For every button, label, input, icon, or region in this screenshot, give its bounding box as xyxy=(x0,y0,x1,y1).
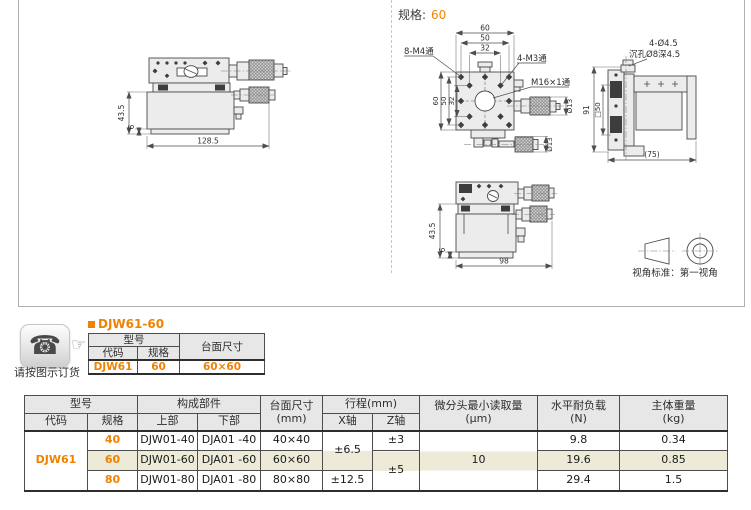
cell-size: 40×40 xyxy=(261,431,323,451)
header-size: 台面尺寸(mm) xyxy=(261,396,323,431)
cell-spec: 40 xyxy=(88,431,138,451)
order-table: 型号 台面尺寸 代码 规格 DJW61 60 60×60 xyxy=(88,333,265,375)
label-counterbore: 沉孔Ø8深4.5 xyxy=(629,49,680,60)
label-m3-holes: 4-M3通 xyxy=(517,53,547,64)
order-cell-spec: 60 xyxy=(138,360,180,374)
cell-travel-z: ±3 xyxy=(373,431,420,451)
header-upper: 上部 xyxy=(138,414,198,431)
right-side-view-drawing: 91 □50 (75) 4-Ø4.5 沉孔Ø8深4.5 xyxy=(582,38,696,163)
header-z-axis: Z轴 xyxy=(373,414,420,431)
label-mount-holes: 4-Ø4.5 xyxy=(649,38,678,49)
dim-knob-dia-right: Ø13 xyxy=(566,99,574,113)
cell-travel-z: ±5 xyxy=(373,451,420,491)
header-code: 代码 xyxy=(25,414,88,431)
cell-upper: DJW01-80 xyxy=(138,471,198,491)
cell-load: 9.8 xyxy=(538,431,620,451)
technical-drawings: 43.5 6 128.5 xyxy=(19,0,746,307)
phone-icon: ☎ xyxy=(29,333,61,359)
dim-front-left-50: 50 xyxy=(440,97,448,106)
order-cell-size: 60×60 xyxy=(180,360,265,374)
dim-lower-base: 6 xyxy=(438,247,447,252)
dim-front-left-32: 32 xyxy=(448,97,456,106)
dim-right-depth: (75) xyxy=(644,150,659,159)
cell-resolution: 10 xyxy=(420,431,538,491)
order-instruction: 请按图示订货 xyxy=(14,364,80,380)
header-model: 型号 xyxy=(25,396,138,414)
cell-weight: 0.34 xyxy=(620,431,728,451)
cell-load: 29.4 xyxy=(538,471,620,491)
header-x-axis: X轴 xyxy=(323,414,373,431)
dim-front-top-32: 32 xyxy=(480,44,490,53)
orange-bullet-icon xyxy=(88,321,95,328)
dim-side-base: 6 xyxy=(127,124,136,129)
front-view-drawing: Ø13 Ø13 60 50 xyxy=(404,24,574,153)
dim-right-height: 91 xyxy=(582,105,591,115)
cell-spec: 80 xyxy=(88,471,138,491)
cell-size: 60×60 xyxy=(261,451,323,471)
cell-lower: DJA01 -80 xyxy=(198,471,261,491)
cell-weight: 1.5 xyxy=(620,471,728,491)
dim-front-left-60: 60 xyxy=(432,97,440,106)
cell-spec: 60 xyxy=(88,451,138,471)
header-travel: 行程(mm) xyxy=(323,396,420,414)
cell-travel-x: ±12.5 xyxy=(323,471,373,491)
product-title-text: DJW61-60 xyxy=(98,317,164,331)
dim-front-top-60: 60 xyxy=(480,24,490,33)
header-load: 水平耐负载(N) xyxy=(538,396,620,431)
dim-side-width: 128.5 xyxy=(197,137,219,146)
cell-upper: DJW01-40 xyxy=(138,431,198,451)
dim-right-square: □50 xyxy=(594,102,602,118)
table-row-highlighted: 60 DJW01-60 DJA01 -60 60×60 ±5 19.6 0.85 xyxy=(25,451,728,471)
header-weight: 主体重量(kg) xyxy=(620,396,728,431)
catalog-page: 规格:60 xyxy=(0,0,751,510)
pointing-hand-icon: ☞ xyxy=(71,335,86,355)
order-cell-code: DJW61 xyxy=(89,360,138,374)
dim-lower-height: 43.5 xyxy=(428,222,437,239)
dim-front-top-50: 50 xyxy=(480,34,490,43)
order-header-size: 台面尺寸 xyxy=(180,334,265,361)
header-spec: 规格 xyxy=(88,414,138,431)
cell-load: 19.6 xyxy=(538,451,620,471)
header-lower: 下部 xyxy=(198,414,261,431)
cell-series-code: DJW61 xyxy=(25,431,88,491)
label-m4-holes: 8-M4通 xyxy=(404,46,434,57)
dim-knob-dia-bottom: Ø13 xyxy=(546,137,554,151)
table-row: DJW61 40 DJW01-40 DJA01 -40 40×40 ±6.5 ±… xyxy=(25,431,728,451)
order-header-spec: 规格 xyxy=(138,347,180,361)
dim-lower-width: 98 xyxy=(499,257,509,266)
lower-front-view-drawing: 43.5 6 98 xyxy=(428,182,557,269)
first-angle-projection-symbol: 视角标准：第一视角 xyxy=(632,233,718,279)
spec-table: 型号 构成部件 台面尺寸(mm) 行程(mm) 微分头最小读取量(μm) 水平耐… xyxy=(24,395,728,492)
label-m16-thread: M16×1通 xyxy=(531,77,571,88)
cell-lower: DJA01 -60 xyxy=(198,451,261,471)
header-resolution: 微分头最小读取量(μm) xyxy=(420,396,538,431)
dim-side-height: 43.5 xyxy=(117,104,126,121)
header-components: 构成部件 xyxy=(138,396,261,414)
cell-lower: DJA01 -40 xyxy=(198,431,261,451)
cell-weight: 0.85 xyxy=(620,451,728,471)
cell-upper: DJW01-60 xyxy=(138,451,198,471)
product-title: DJW61-60 xyxy=(88,317,164,331)
cell-travel-x: ±6.5 xyxy=(323,431,373,471)
order-header-code: 代码 xyxy=(89,347,138,361)
side-view-drawing: 43.5 6 128.5 xyxy=(117,58,291,149)
cell-size: 80×80 xyxy=(261,471,323,491)
phone-order-button: ☎ xyxy=(20,324,70,368)
order-header-model: 型号 xyxy=(89,334,180,347)
projection-caption: 视角标准：第一视角 xyxy=(632,267,718,279)
drawing-panel: 规格:60 xyxy=(18,0,745,307)
